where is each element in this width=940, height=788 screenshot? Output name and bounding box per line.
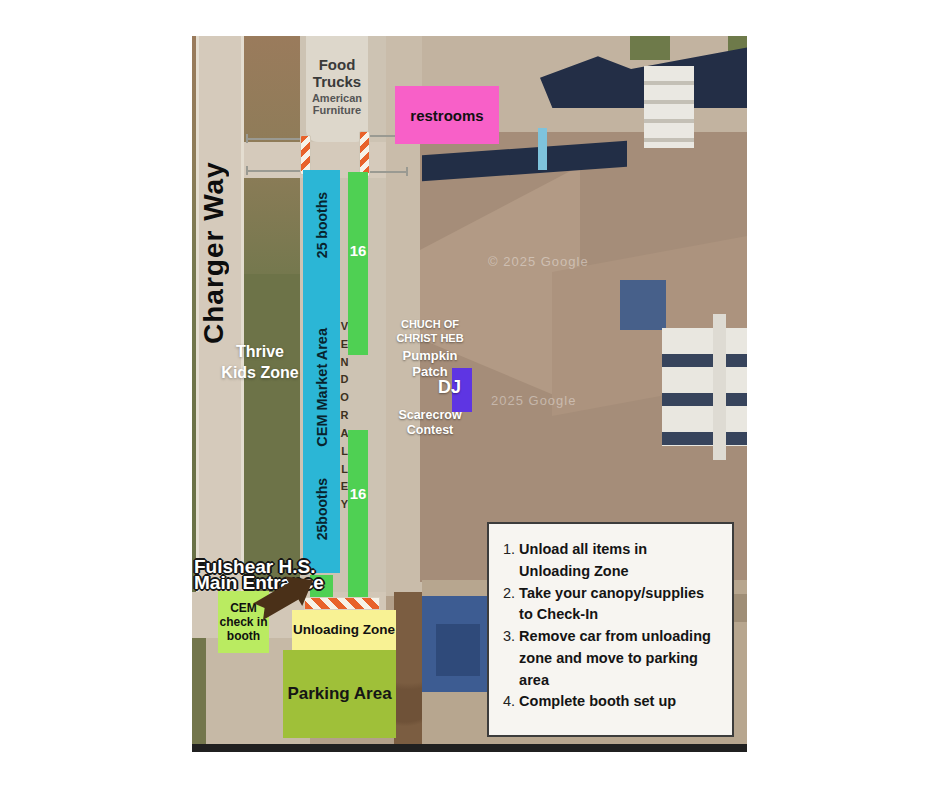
- satellite-grass-strip: [192, 638, 206, 752]
- barricade-icon: [359, 131, 370, 177]
- parking-area: Parking Area: [283, 650, 396, 738]
- instruction-item: Remove car from unloading zone and move …: [503, 626, 720, 691]
- satellite-skylight: [538, 128, 547, 170]
- market-mid-label: CEM Market Area: [314, 328, 330, 447]
- satellite-map: © 2025 Google 2025 Google Charger Way Fo…: [192, 36, 747, 752]
- map-watermark: © 2025 Google: [488, 254, 589, 269]
- event-map-flyer: © 2025 Google 2025 Google Charger Way Fo…: [0, 0, 940, 788]
- thrive-kids-zone-label: Thrive Kids Zone: [220, 342, 300, 384]
- restrooms-zone: restrooms: [395, 86, 499, 144]
- direction-arrow-icon: [244, 570, 328, 634]
- street-label-charger-way: Charger Way: [198, 144, 230, 344]
- barricade-icon: [300, 135, 311, 175]
- church-label: CHUCH OF CHRIST HEB: [386, 318, 474, 346]
- scarecrow-contest-label: Scarecrow Contest: [386, 408, 474, 438]
- instruction-item: Take your canopy/supplies to Check-In: [503, 583, 720, 627]
- satellite-rooftop-hvac: [644, 66, 694, 148]
- vendor-row-top: 16: [348, 172, 368, 355]
- leader-tick: [246, 166, 248, 175]
- food-trucks-label: Food Trucks American Furniture: [302, 56, 372, 116]
- map-attribution-bar: [192, 744, 747, 752]
- satellite-blue-roof: [620, 280, 666, 330]
- dj-label: DJ: [438, 377, 461, 398]
- instruction-item: Complete booth set up: [503, 691, 720, 713]
- cem-market-area-bar: 25 booths CEM Market Area 25booths: [303, 170, 340, 573]
- leader-line: [370, 171, 408, 173]
- instruction-item: Unload all items in Unloading Zone: [503, 539, 720, 583]
- leader-line: [248, 138, 300, 140]
- parking-label: Parking Area: [287, 684, 391, 704]
- food-trucks-subtitle: American Furniture: [302, 92, 372, 116]
- leader-tick: [246, 134, 248, 143]
- leader-tick: [406, 167, 408, 176]
- instructions-panel: Unload all items in Unloading Zone Take …: [487, 522, 734, 737]
- satellite-grass-patch: [630, 36, 670, 60]
- market-bottom-label: 25booths: [314, 478, 330, 540]
- leader-line: [248, 170, 300, 172]
- booth-count-top: 16: [348, 242, 368, 259]
- restrooms-label: restrooms: [410, 107, 483, 124]
- satellite-walkway-canopies: [662, 328, 747, 446]
- map-watermark: 2025 Google: [491, 393, 576, 408]
- satellite-blue-roof-bottom: [418, 596, 494, 692]
- instructions-list: Unload all items in Unloading Zone Take …: [503, 539, 720, 713]
- food-trucks-title: Food Trucks: [302, 56, 372, 91]
- booth-count-bottom: 16: [348, 485, 368, 502]
- satellite-walkway: [713, 314, 726, 460]
- satellite-trees: [394, 592, 422, 752]
- market-top-label: 25 booths: [314, 192, 330, 258]
